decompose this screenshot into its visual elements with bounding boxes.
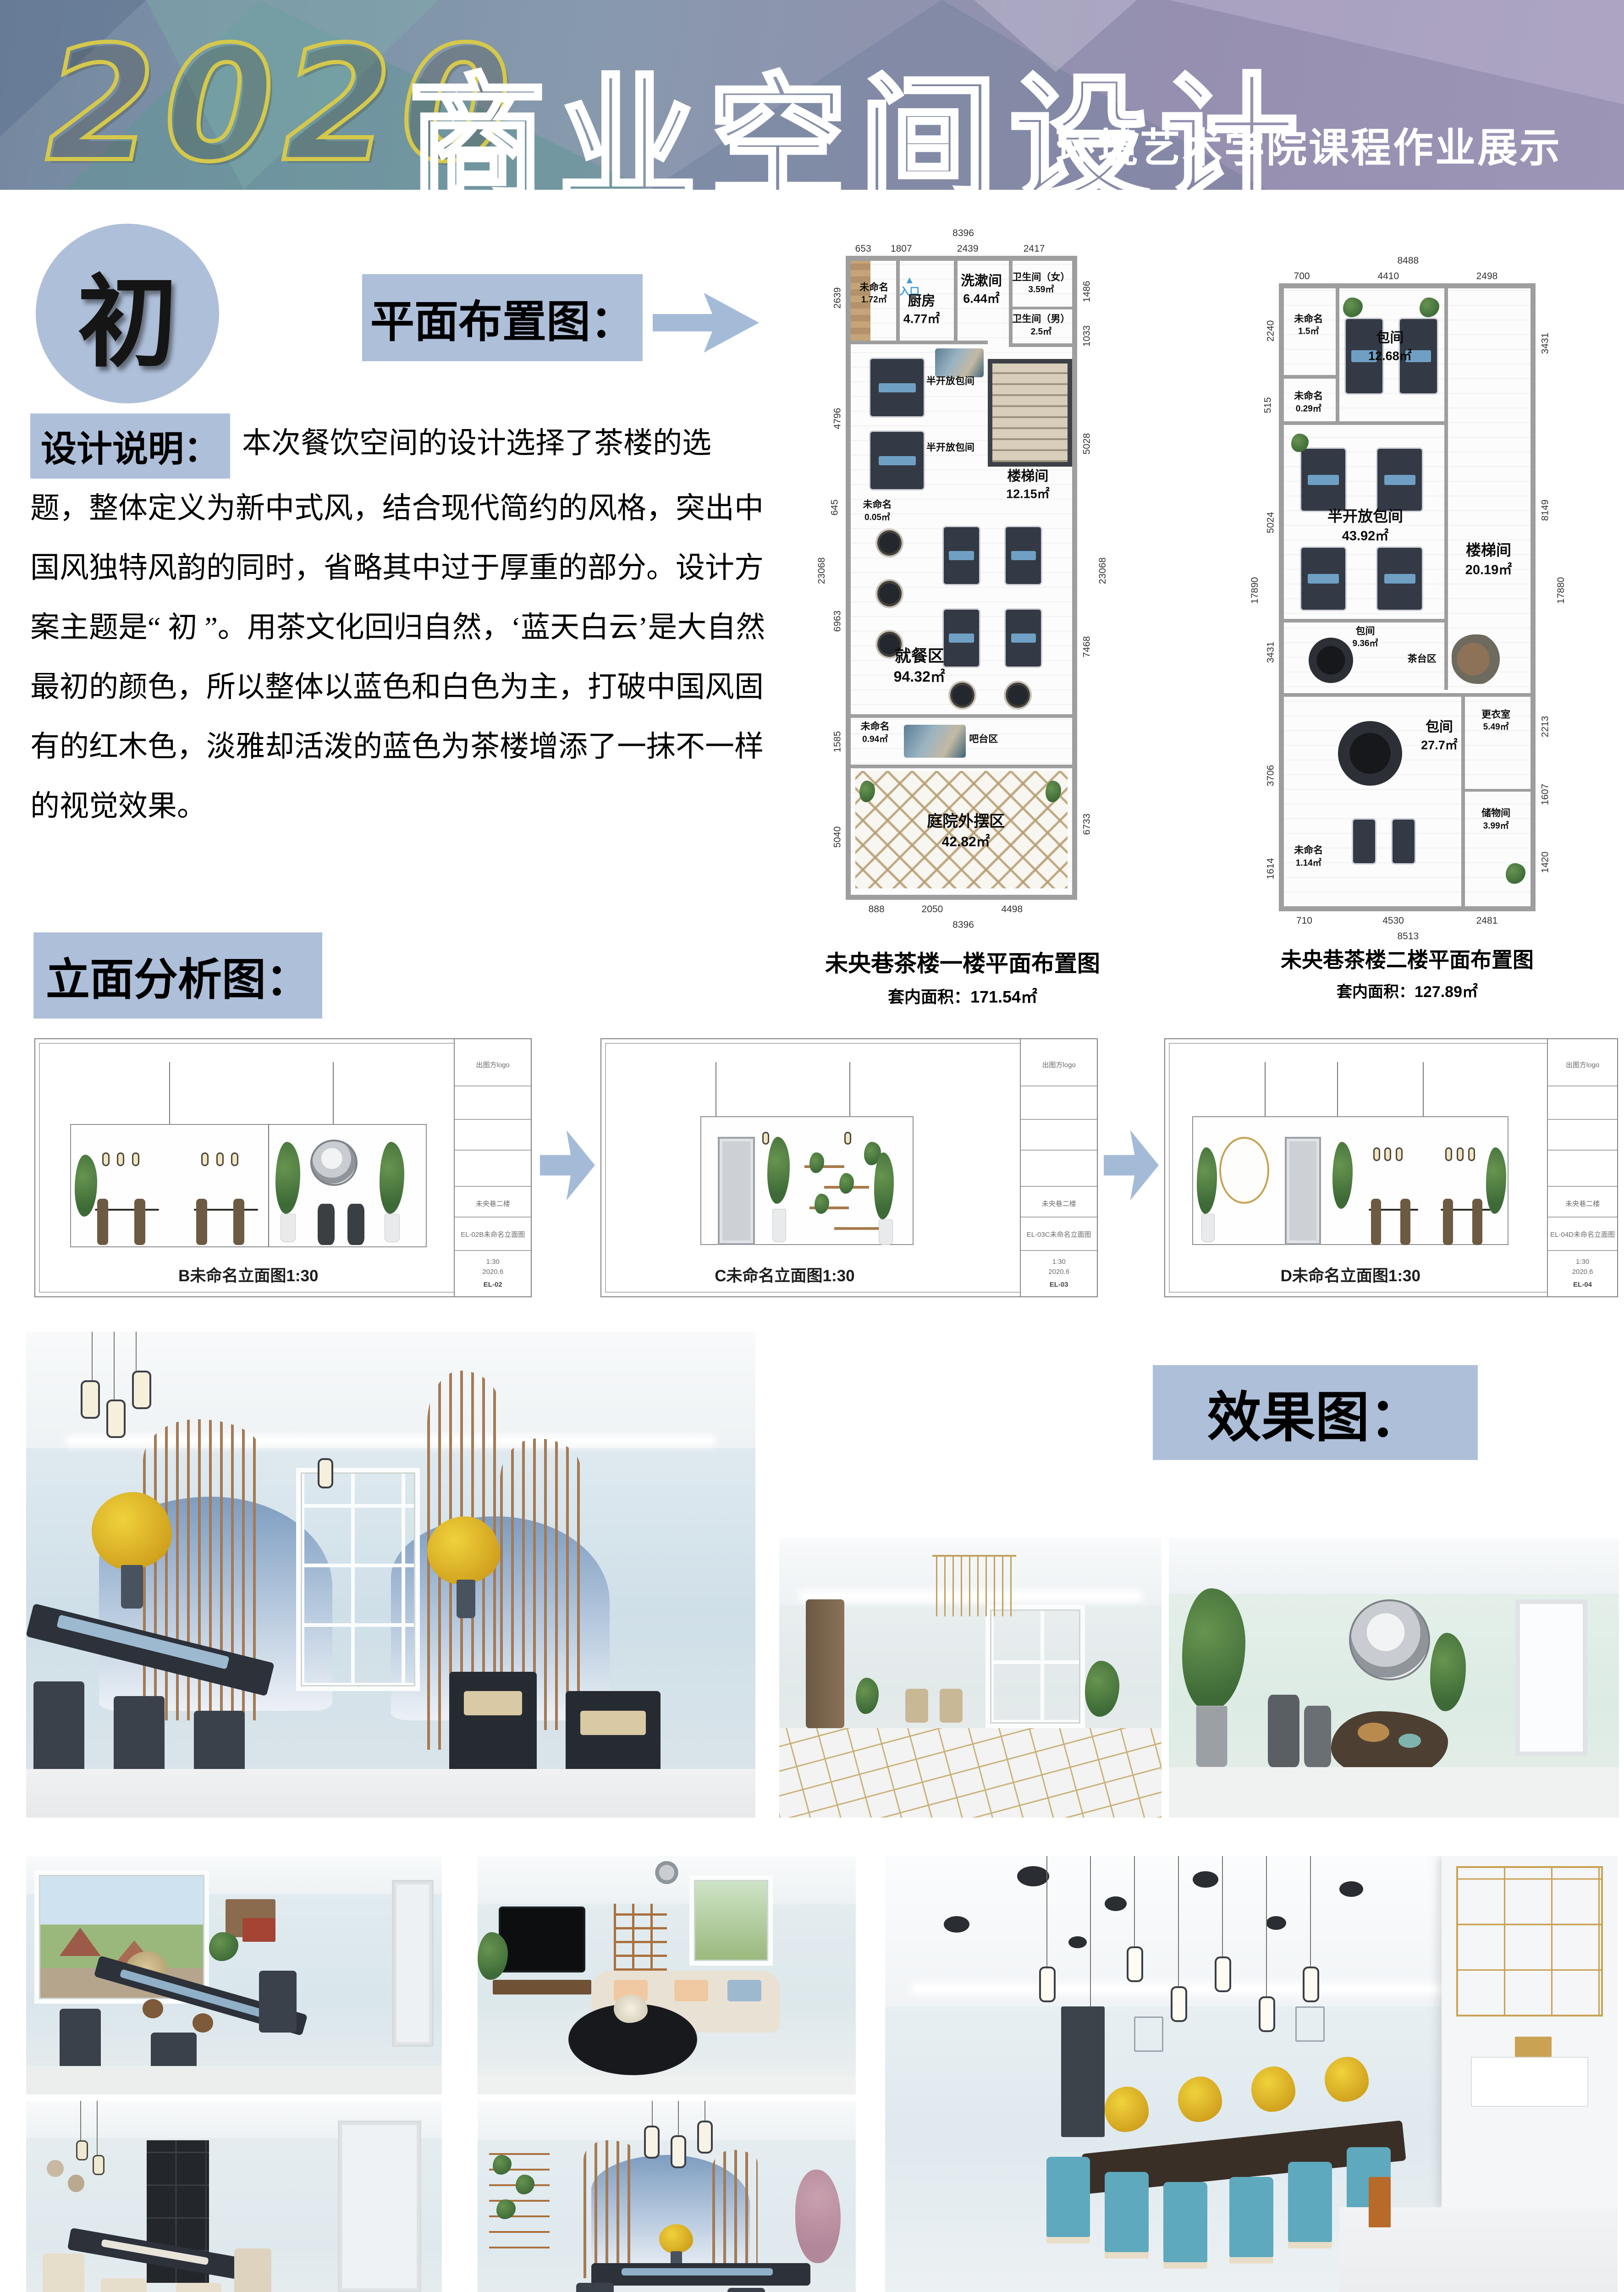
- dining-table: [1353, 820, 1375, 863]
- elevation-wall: [70, 1124, 427, 1247]
- room-label: 半开放包间43.92㎡: [1327, 508, 1403, 544]
- room-label: 楼梯间12.15㎡: [1006, 468, 1050, 502]
- leader-line: [169, 1062, 170, 1124]
- dimension: 3431: [1540, 332, 1551, 354]
- dining-table: [870, 432, 924, 489]
- dimension: 6963: [832, 611, 843, 632]
- glass-door: [985, 1605, 1085, 1728]
- vase: [457, 1580, 475, 1619]
- pendant-lamp: [1373, 1147, 1380, 1161]
- chair: [576, 2283, 614, 2292]
- room-label: 未命名1.5㎡: [1294, 314, 1323, 337]
- pendant-cord: [80, 2101, 81, 2140]
- dimension: 2481: [1476, 915, 1498, 926]
- chair: [97, 1199, 108, 1245]
- door: [1285, 1137, 1321, 1245]
- white-flowers: [614, 1994, 648, 2023]
- title-block-project: 未央巷二楼: [455, 1199, 531, 1208]
- pendant-lamp: [216, 1152, 224, 1166]
- marble-floor: [779, 1728, 1162, 1818]
- yellow-flowers: [1325, 2057, 1369, 2102]
- gold-deco: [1515, 2037, 1552, 2057]
- plate: [193, 2013, 213, 2033]
- pendant-cord: [705, 2101, 705, 2121]
- entrance-arrow-icon: ▲: [904, 274, 914, 286]
- chair: [1472, 1199, 1482, 1245]
- wall: [851, 714, 1072, 718]
- dining-table: [1377, 548, 1422, 610]
- dimension: 6733: [1082, 814, 1093, 835]
- elevation-title: C未命名立面图1:30: [636, 1263, 934, 1286]
- dimension: 700: [1294, 271, 1310, 282]
- elevation-title: D未命名立面图1:30: [1192, 1263, 1508, 1286]
- plant: [1420, 298, 1439, 317]
- room-label: 吧台区: [969, 734, 998, 745]
- wall: [1284, 693, 1530, 697]
- title-block-project: 未央巷二楼: [1548, 1199, 1617, 1208]
- room-label: 包间9.36㎡: [1353, 626, 1378, 649]
- floor-plan-second: 未命名1.5㎡ 未命名0.29㎡ 包间12.68㎡ 半开放包间43.92㎡ 楼梯…: [1279, 283, 1536, 911]
- dimension: 17890: [1250, 577, 1261, 604]
- room-label: 庭院外摆区42.82㎡: [927, 813, 1005, 850]
- dimension: 8396: [952, 228, 974, 239]
- stone-stool: [1304, 1706, 1331, 1767]
- round-table: [877, 581, 902, 606]
- dimension: 4530: [1382, 915, 1404, 926]
- title-block-code: EL-02: [455, 1281, 531, 1289]
- yellow-flowers: [1178, 2077, 1222, 2121]
- wall: [1009, 343, 1072, 347]
- teal-chair: [1046, 2157, 1090, 2237]
- dimension: 23068: [816, 557, 827, 584]
- dining-table: [1377, 449, 1422, 511]
- leader-line: [849, 1062, 850, 1116]
- dimension: 653: [855, 243, 871, 254]
- chair: [234, 2248, 272, 2292]
- octagon-table: [1309, 638, 1353, 683]
- chair: [43, 2253, 84, 2292]
- pendant-cord: [1134, 1856, 1135, 1946]
- dimension: 1585: [832, 731, 843, 753]
- wall-deco: [47, 2160, 63, 2177]
- wood-panel: [806, 1599, 844, 1728]
- table-runner: [622, 2268, 773, 2275]
- vase: [772, 1209, 786, 1242]
- title-block-drawing: EL-03C未命名立面图: [1021, 1229, 1097, 1239]
- title-block-date: 2020.6: [1021, 1268, 1097, 1276]
- round-table: [1006, 683, 1030, 708]
- arrow-right-icon: [653, 292, 759, 354]
- room-label: 未命名1.14㎡: [1294, 845, 1323, 869]
- arrow-right-icon: [540, 1129, 595, 1202]
- render-lantern-dining: [478, 2101, 856, 2292]
- dimension: 5040: [832, 826, 843, 848]
- dimension: 1486: [1082, 281, 1093, 303]
- vase: [385, 1214, 399, 1242]
- lantern-lamp: [132, 1371, 151, 1409]
- pendant-cord: [1222, 1856, 1223, 1956]
- yellow-flowers: [92, 1492, 172, 1570]
- title-block-logo: 出图方logo: [455, 1060, 531, 1069]
- wall: [1444, 288, 1448, 690]
- wall: [1336, 288, 1339, 424]
- dimension: 5024: [1265, 512, 1276, 533]
- vase: [121, 1565, 143, 1609]
- dining-table: [944, 610, 979, 667]
- wall: [1461, 693, 1465, 906]
- design-description: 设计说明：本次餐饮空间的设计选择了茶楼的选题，整体定义为新中式风，结合现代简约的…: [30, 413, 769, 836]
- dimension: 515: [1263, 397, 1274, 413]
- cushion: [464, 1691, 522, 1715]
- dimension: 8488: [1397, 255, 1419, 266]
- yellow-flowers: [427, 1516, 500, 1584]
- dimension: 1420: [1540, 852, 1551, 873]
- dimension: 1807: [891, 243, 912, 254]
- glass-pendant: [93, 2155, 105, 2175]
- wall: [1284, 375, 1338, 379]
- pendant-lamp: [1039, 1967, 1056, 2002]
- plan-second-area: 套内面积：127.89㎡: [1247, 979, 1568, 1002]
- dimension: 1607: [1540, 784, 1551, 805]
- dining-table: [1006, 610, 1041, 667]
- pendant-lamp: [1445, 1147, 1452, 1161]
- title-block-date: 2020.6: [1548, 1268, 1617, 1276]
- wall-frame: [1295, 2006, 1325, 2042]
- round-ink-art: [1349, 1599, 1430, 1680]
- window: [296, 1468, 420, 1691]
- yellow-flowers: [1105, 2087, 1149, 2132]
- ceiling-disc-light: [944, 1916, 969, 1933]
- chair: [259, 1971, 297, 2033]
- rock-garden: [1452, 634, 1506, 684]
- dimension: 710: [1296, 915, 1312, 926]
- stool: [347, 1204, 364, 1245]
- pendant-lamp: [1215, 1956, 1231, 1992]
- leader-line: [333, 1062, 334, 1124]
- chair: [940, 1689, 963, 1722]
- section-label-description: 设计说明：: [30, 413, 230, 479]
- palm-plant: [1182, 1588, 1245, 1711]
- render-main-dining: [26, 1332, 755, 1818]
- title-block-drawing: EL-02B未命名立面图: [455, 1229, 531, 1239]
- round-branch-art: [1219, 1137, 1269, 1204]
- title-block-scale: 1:30: [1548, 1258, 1617, 1266]
- octagon-table: [1338, 721, 1402, 786]
- dimension: 3706: [1265, 765, 1276, 787]
- cove-light: [914, 1986, 1471, 1991]
- floor: [26, 2066, 442, 2094]
- floor-plan-second-canvas: 未命名1.5㎡ 未命名0.29㎡ 包间12.68㎡ 半开放包间43.92㎡ 楼梯…: [1284, 288, 1530, 906]
- pendant-lamp: [1127, 1946, 1143, 1982]
- leader-line: [716, 1062, 716, 1116]
- pendant-cord: [1090, 1856, 1091, 2006]
- title-block-logo: 出图方logo: [1021, 1060, 1097, 1069]
- planter: [1196, 1706, 1228, 1767]
- round-table: [950, 683, 974, 708]
- vase: [879, 1219, 892, 1245]
- room-label: 洗漱间6.44㎡: [961, 273, 1002, 307]
- pendant-cord: [92, 1332, 93, 1380]
- plant: [209, 1932, 238, 1961]
- render-lounge-tv: [478, 1856, 856, 2094]
- render-main-hall: [885, 1856, 1618, 2292]
- dimension: 2639: [832, 287, 843, 309]
- pendant-lamp: [844, 1132, 851, 1145]
- room-label: 未命名0.29㎡: [1294, 391, 1323, 414]
- lantern-lamp: [671, 2135, 686, 2168]
- dimension: 23068: [1097, 557, 1108, 584]
- chair: [134, 1199, 145, 1245]
- title-block: 出图方logo 未央巷二楼 EL-03C未命名立面图 1:30 2020.6 E…: [1020, 1039, 1097, 1296]
- room-label: 未命名1.72㎡: [859, 282, 888, 306]
- chair: [1443, 1199, 1453, 1245]
- pendant-cord: [678, 2101, 679, 2135]
- shelf: [834, 1227, 879, 1230]
- theme-character: 初: [77, 241, 177, 386]
- dimension: 3431: [1265, 641, 1276, 663]
- pendant-lamp: [1171, 1986, 1187, 2022]
- render-dining-bookshelf: [26, 2101, 442, 2292]
- leader-line: [1265, 1062, 1266, 1116]
- pendant-lamp: [102, 1152, 110, 1166]
- yellow-flowers: [1251, 2066, 1295, 2111]
- render-tea-corner: [1169, 1538, 1619, 1818]
- wall: [1009, 307, 1072, 309]
- lantern-lamp: [81, 1380, 100, 1419]
- title-block-project: 未央巷二楼: [1021, 1199, 1097, 1208]
- dining-table: [1006, 527, 1041, 584]
- title-block-code: EL-03: [1021, 1281, 1097, 1289]
- pendant-lamp: [1468, 1147, 1475, 1161]
- wall-divider: [268, 1124, 269, 1247]
- poster: 2020 商业空间设计 环境艺术学院课程作业展示 初 平面布置图： 设计说明：本…: [0, 0, 1624, 2292]
- round-table: [877, 530, 902, 556]
- render-dining-window: [26, 1856, 442, 2094]
- dimension: 2050: [922, 904, 943, 915]
- plant: [1085, 1661, 1119, 1717]
- plant: [1343, 298, 1363, 317]
- section-label-plan: 平面布置图：: [362, 274, 643, 361]
- plate: [143, 1999, 163, 2018]
- pendant-cord: [97, 2101, 98, 2155]
- chair: [176, 2283, 222, 2292]
- chandelier: [644, 1861, 689, 1884]
- chair: [196, 1199, 207, 1245]
- room-label: 更衣室5.49㎡: [1481, 709, 1510, 733]
- rug-art: [935, 348, 984, 378]
- wall: [896, 261, 900, 341]
- chair: [1400, 1199, 1410, 1245]
- room-label: 半开放包间: [926, 376, 974, 387]
- door-frame: [392, 1880, 434, 2047]
- description-text: 本次餐饮空间的设计选择了茶楼的选题，整体定义为新中式风，结合现代简约的风格，突出…: [30, 427, 765, 822]
- dimension: 4498: [1001, 904, 1023, 915]
- floor-plan-first-canvas: ▲入口 未命名1.72㎡ 厨房4.77㎡ 洗漱间6.44㎡ 卫生间（女）3.59…: [851, 261, 1072, 895]
- copper-screen: [584, 2140, 637, 2278]
- dimension: 2498: [1476, 271, 1498, 282]
- room-label: 未命名0.94㎡: [861, 722, 890, 745]
- plan-first-caption: 未央巷茶楼一楼平面布置图: [802, 945, 1123, 978]
- cushion: [580, 1711, 646, 1735]
- pendant-cord: [1178, 1856, 1179, 1986]
- pendant-lamp: [762, 1132, 769, 1145]
- dining-table: [1301, 449, 1346, 511]
- chair: [233, 1199, 244, 1245]
- wall: [1284, 619, 1447, 623]
- pendant-lamp: [1457, 1147, 1464, 1161]
- dining-table: [1393, 820, 1415, 863]
- yellow-flowers: [659, 2224, 693, 2253]
- dining-table: [1301, 548, 1346, 610]
- teapot: [1398, 1734, 1421, 1748]
- plant: [1506, 863, 1525, 884]
- arrow-right-icon: [1104, 1129, 1159, 1202]
- stool: [318, 1204, 335, 1245]
- pendant-cord: [1310, 1856, 1311, 1967]
- title-block-drawing: EL-04D未命名立面图: [1548, 1229, 1617, 1239]
- plan-second-caption: 未央巷茶楼二楼平面布置图: [1247, 943, 1568, 974]
- title-block-date: 2020.6: [455, 1268, 531, 1276]
- room-label: 厨房4.77㎡: [903, 294, 940, 327]
- ceiling-disc-light: [1339, 1881, 1363, 1897]
- lantern-lamp: [318, 1458, 333, 1488]
- round-ink-art: [310, 1140, 358, 1186]
- ceiling-disc-light: [1017, 1866, 1049, 1886]
- lantern-lamp: [644, 2126, 660, 2159]
- red-deco-box: [242, 1918, 276, 1942]
- pendant-cord: [1266, 1856, 1267, 1996]
- dining-table: [870, 359, 924, 416]
- mirror-panel: [1061, 2006, 1105, 2137]
- elevation-sheet-d: D未命名立面图1:30 出图方logo 未央巷二楼 EL-04D未命名立面图 1…: [1164, 1038, 1618, 1297]
- dimension: 2240: [1265, 320, 1276, 342]
- ceiling: [1169, 1538, 1619, 1594]
- display-shelf: [1456, 1866, 1603, 2017]
- wall: [1461, 789, 1530, 792]
- room-label: 半开放包间: [926, 442, 974, 453]
- rug-art: [904, 725, 966, 758]
- tea-tray: [1358, 1723, 1389, 1742]
- room-label: 卫生间（男）2.5㎡: [1012, 314, 1070, 337]
- pendant-lamp: [231, 1152, 238, 1166]
- cushion: [674, 1980, 708, 2001]
- dimension: 4410: [1377, 271, 1399, 282]
- dimension: 888: [869, 904, 885, 915]
- wall: [1284, 421, 1447, 425]
- plant: [1430, 1633, 1466, 1711]
- wall: [954, 261, 958, 341]
- lantern-lamp: [106, 1399, 126, 1438]
- dimension: 7468: [1082, 636, 1093, 657]
- title-block: 出图方logo 未央巷二楼 EL-02B未命名立面图 1:30 2020.6 E…: [454, 1039, 531, 1296]
- pendant-cord: [114, 1332, 115, 1399]
- tv-screen: [501, 1908, 584, 1970]
- header-banner: 2020 商业空间设计 环境艺术学院课程作业展示: [0, 0, 1624, 190]
- leader-line: [1423, 1062, 1424, 1116]
- dimension: 1614: [1265, 858, 1276, 879]
- dimension: 4796: [832, 408, 843, 430]
- vase: [1201, 1214, 1215, 1242]
- teal-chair: [1229, 2177, 1273, 2257]
- room-label: 储物间3.99㎡: [1481, 808, 1510, 832]
- elevation-sheet-c: C未命名立面图1:30 出图方logo 未央巷二楼 EL-03C未命名立面图 1…: [600, 1038, 1098, 1297]
- room-label: 卫生间（女）3.59㎡: [1012, 272, 1070, 296]
- plan-first-area: 套内面积：171.54㎡: [802, 984, 1123, 1008]
- wall-deco: [68, 2175, 84, 2192]
- room-label: 楼梯间20.19㎡: [1465, 542, 1512, 579]
- pendant-lamp: [1396, 1147, 1403, 1161]
- dimension: 2439: [957, 243, 979, 254]
- stairwell: [988, 359, 1072, 467]
- room-label: 包间27.7㎡: [1421, 720, 1458, 753]
- brass-pendant-rods: [936, 1555, 1013, 1616]
- chair: [101, 2278, 147, 2292]
- theme-badge: 初: [36, 224, 219, 403]
- room-label: 就餐区94.32㎡: [894, 647, 945, 686]
- room-label: 未命名0.05㎡: [863, 500, 892, 523]
- dining-table: [944, 527, 979, 584]
- leader-line: [1337, 1062, 1338, 1116]
- dimension: 8396: [952, 920, 974, 931]
- ceiling-disc-light: [1105, 1896, 1127, 1911]
- teal-chair: [1288, 2162, 1332, 2242]
- ceiling-disc-light: [1068, 1936, 1087, 1948]
- door: [718, 1137, 755, 1245]
- cushion: [727, 1980, 761, 2001]
- copper-screen: [712, 2150, 758, 2278]
- page-subtitle: 环境艺术学院课程作业展示: [1004, 116, 1613, 174]
- glass-pendant: [76, 2140, 88, 2160]
- ceiling-disc-light: [1193, 1871, 1218, 1888]
- door: [1515, 1599, 1587, 1756]
- pendant-lamp: [132, 1152, 139, 1166]
- dimension: 8513: [1397, 931, 1419, 942]
- wood-shelf: [614, 1904, 667, 1971]
- floor: [26, 1769, 755, 1818]
- lantern-lamp: [697, 2121, 713, 2154]
- floor: [478, 2075, 856, 2094]
- wall: [851, 341, 988, 344]
- wall: [851, 765, 1072, 768]
- room-label: 包间12.68㎡: [1368, 331, 1412, 364]
- teal-chair: [1105, 2172, 1149, 2252]
- title-block-scale: 1:30: [455, 1258, 531, 1266]
- wine-bottle: [1369, 2177, 1391, 2227]
- pendant-lamp: [1303, 1967, 1319, 2002]
- blossom-tree: [795, 2170, 841, 2263]
- pendant-lamp: [117, 1152, 124, 1166]
- dimension: 17880: [1556, 577, 1567, 604]
- section-label-render: 效果图：: [1153, 1365, 1478, 1460]
- render-hallway: [779, 1538, 1162, 1818]
- title-block-logo: 出图方logo: [1548, 1060, 1617, 1069]
- drawer-cabinet: [1471, 2057, 1588, 2107]
- elevation-title: B未命名立面图1:30: [70, 1263, 427, 1286]
- room-label: 茶台区: [1408, 654, 1437, 665]
- dimension: 5028: [1082, 433, 1093, 455]
- chair: [1371, 1199, 1381, 1245]
- dimension: 2417: [1024, 243, 1045, 254]
- elevation-sheet-b: B未命名立面图1:30 出图方logo 未央巷二楼 EL-02B未命名立面图 1…: [34, 1038, 532, 1297]
- title-block-scale: 1:30: [1021, 1258, 1097, 1266]
- plant: [478, 1932, 508, 1980]
- dimension: 1033: [1082, 325, 1093, 347]
- title-block-code: EL-04: [1548, 1281, 1617, 1289]
- chair: [727, 2288, 765, 2292]
- teal-chair: [1163, 2182, 1207, 2262]
- dimension: 2213: [1540, 716, 1551, 737]
- media-console: [493, 1980, 591, 1994]
